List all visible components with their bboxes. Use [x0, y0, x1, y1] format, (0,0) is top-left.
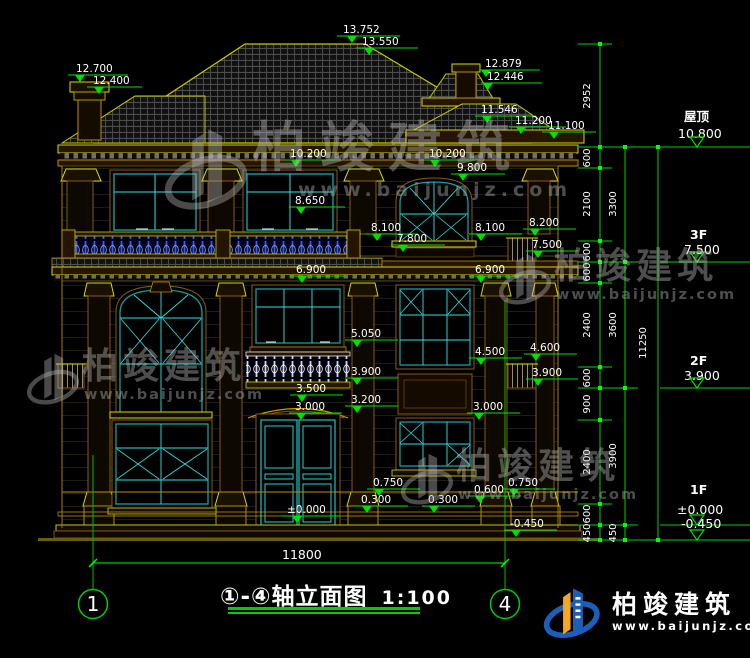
elevation-marker-text: 0.300: [428, 494, 458, 506]
elevation-marker-text: 6.900: [296, 264, 326, 276]
balustrade-3f: [62, 230, 360, 258]
elevation-marker-text: 12.879: [485, 58, 522, 70]
axis-bubble-1-label: 1: [87, 592, 100, 616]
dimension-text: 2952: [582, 83, 593, 108]
elevation-marker-text: 0.600: [474, 484, 504, 496]
dimension-chains: [578, 44, 750, 540]
dimension-text: 11250: [638, 327, 649, 359]
title-scale: 1:100: [382, 587, 452, 609]
elevation-marker-text: 8.100: [475, 222, 505, 234]
chimney-right: [452, 64, 480, 98]
elevation-marker-triangle: [75, 75, 85, 82]
dimension-text: 600: [582, 262, 593, 281]
elevation-marker-text: 8.650: [295, 195, 325, 207]
floor-level-triangle: [690, 530, 704, 540]
elevation-marker-text: 10.200: [290, 148, 327, 160]
window-2f-stairwell: [396, 285, 474, 369]
elevation-marker-text: 3.000: [295, 401, 325, 413]
elevation-marker-text: 3.900: [351, 366, 381, 378]
elevation-marker-text: 3.900: [532, 367, 562, 379]
dimension-text: 2400: [582, 449, 593, 474]
elevation-marker-text: 12.446: [487, 71, 524, 83]
drawing-title: ①-④轴立面图1:100: [220, 577, 452, 611]
elevation-marker-triangle: [347, 36, 357, 43]
side-balcony-2f-left: [56, 364, 86, 388]
floor-level-elevation: 10.800: [678, 126, 722, 141]
cad-canvas: 11800 1 4 12.70012.40013.75213.55012.879…: [0, 0, 750, 658]
bottom-dimension: 11800: [282, 547, 322, 562]
axis-bubble-4: 4: [491, 590, 520, 619]
elevation-marker-text: 13.752: [343, 24, 380, 36]
elevation-marker-text: 8.200: [529, 217, 559, 229]
dimension-text: 450: [608, 523, 619, 542]
elevation-marker-text: 13.550: [362, 36, 399, 48]
elevation-marker-text: 9.800: [457, 162, 487, 174]
title-underline: [228, 612, 420, 614]
dimension-text: 600: [582, 148, 593, 167]
elevation-marker-text: 3.000: [473, 401, 503, 413]
axis-bubble-1: 1: [79, 590, 108, 619]
elevation-marker-text: 11.200: [515, 115, 552, 127]
elevation-marker-text: 7.800: [397, 233, 427, 245]
elevation-marker-text: ±0.000: [287, 504, 326, 516]
dimension-text: 3300: [608, 191, 619, 216]
ground-line: [38, 538, 600, 541]
brand-name: 柏竣建筑: [612, 591, 750, 619]
elevation-marker-text: 3.500: [296, 383, 326, 395]
floor-level-name: 1F: [690, 482, 707, 497]
dimension-text: 3600: [608, 312, 619, 337]
elevation-marker-text: 0.750: [508, 477, 538, 489]
elevation-marker-text: 0.300: [361, 494, 391, 506]
dimension-text: 450: [582, 523, 593, 542]
dimension-text: 900: [582, 394, 593, 413]
elevation-marker-text: 6.900: [475, 264, 505, 276]
window-1f-left: [108, 420, 216, 514]
elevation-marker-text: 11.546: [481, 104, 518, 116]
elevation-marker-text: 0.750: [373, 477, 403, 489]
title-underline: [228, 607, 420, 610]
elevation-marker-text: 3.200: [351, 394, 381, 406]
window-3f-left: [110, 170, 200, 234]
brand-logo-icon: [542, 582, 604, 642]
brand-logo: 柏竣建筑 www.baijunjz.com: [542, 582, 750, 642]
elevation-marker-text: 11.100: [548, 120, 585, 132]
elevation-marker-text: 4.600: [530, 342, 560, 354]
spandrel-panel: [398, 374, 472, 414]
elevation-marker-text: 12.400: [93, 75, 130, 87]
window-2f-left-arch: [110, 282, 212, 418]
elevation-marker-text: 7.500: [532, 239, 562, 251]
floor-level-name: 2F: [690, 353, 707, 368]
axis-bubble-4-label: 4: [499, 592, 512, 616]
elevation-drawing: 11800 1 4 12.70012.40013.75213.55012.879…: [0, 0, 750, 658]
elevation-marker-text: 4.500: [475, 346, 505, 358]
dimension-text: 600: [582, 242, 593, 261]
dimension-text: 2400: [582, 312, 593, 337]
elevation-marker-text: 5.050: [351, 328, 381, 340]
floor-level-elevation: -0.450: [681, 516, 721, 531]
dimension-text: 2100: [582, 191, 593, 216]
floor-level-name: 屋顶: [684, 109, 710, 124]
elevation-marker-text: 12.700: [76, 63, 113, 75]
elevation-marker-text: 10.200: [429, 148, 466, 160]
brand-url: www.baijunjz.com: [612, 619, 750, 633]
window-2f-center: [250, 285, 346, 352]
dimension-text: 600: [582, 368, 593, 387]
elevation-marker-text: -0.450: [510, 518, 544, 530]
floor-level-name: 3F: [690, 227, 707, 242]
dimension-text: 600: [582, 504, 593, 523]
window-1f-stairwell: [392, 418, 476, 476]
dimension-text: 3900: [608, 443, 619, 468]
